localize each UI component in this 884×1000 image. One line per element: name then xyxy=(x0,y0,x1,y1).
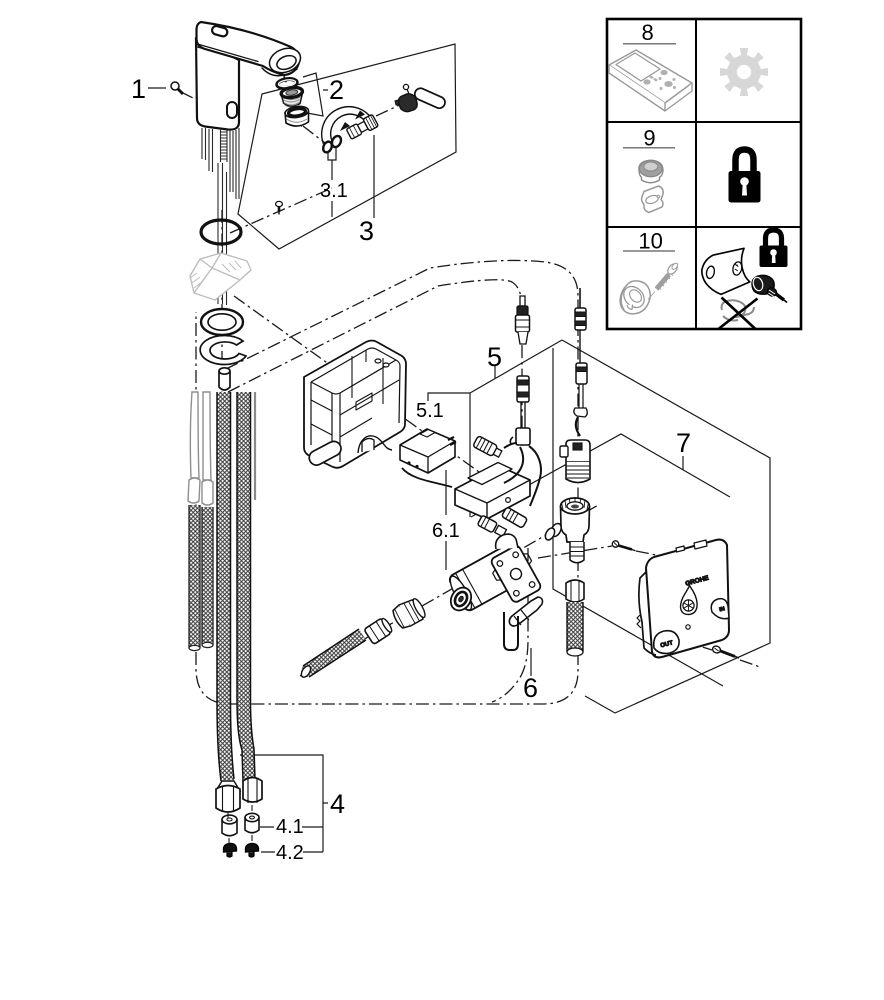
svg-text:3.1: 3.1 xyxy=(320,180,348,202)
svg-text:4.2: 4.2 xyxy=(276,842,304,864)
svg-text:5.1: 5.1 xyxy=(416,400,444,422)
svg-text:3: 3 xyxy=(359,216,374,246)
svg-text:4: 4 xyxy=(330,789,345,819)
svg-text:7: 7 xyxy=(676,428,691,458)
svg-text:6: 6 xyxy=(523,673,538,703)
svg-text:9: 9 xyxy=(643,125,655,150)
svg-text:10: 10 xyxy=(638,229,662,254)
svg-text:2: 2 xyxy=(329,75,344,105)
svg-text:4.1: 4.1 xyxy=(276,816,304,838)
svg-text:5: 5 xyxy=(487,342,502,372)
svg-text:6.1: 6.1 xyxy=(432,520,460,542)
svg-text:1: 1 xyxy=(131,74,146,104)
svg-text:8: 8 xyxy=(642,20,654,45)
